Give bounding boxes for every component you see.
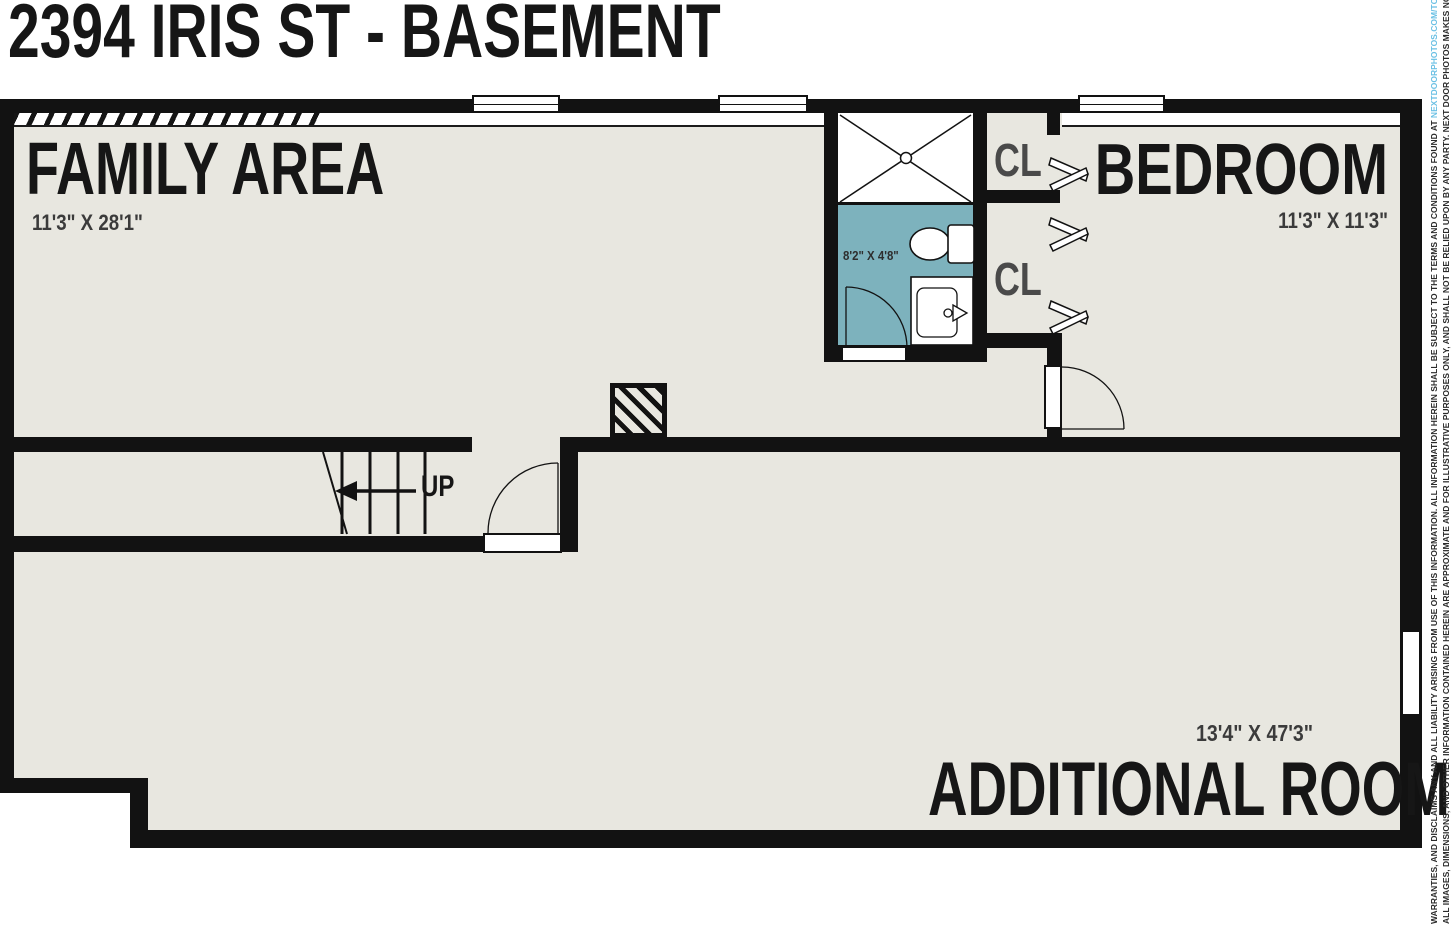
window-pane — [474, 104, 558, 105]
bedroom-label: BEDROOM — [1085, 134, 1388, 206]
wall-closet-stub-top — [1047, 113, 1060, 135]
window-additional-right — [1401, 630, 1421, 716]
closet-bottom-label: CL — [994, 256, 1036, 302]
corridor-door-threshold — [483, 533, 562, 553]
stairs-up-label: UP — [421, 472, 454, 502]
wall-bath-right — [973, 113, 987, 362]
chimney — [610, 383, 667, 438]
wall-right — [1400, 99, 1422, 848]
wall-corridor-end — [560, 437, 578, 552]
window-family-2 — [718, 95, 808, 113]
family-area-dims: 11'3" X 28'1" — [32, 212, 143, 234]
wall-bottom-main — [130, 830, 1422, 848]
wall-middle-long — [560, 437, 1406, 452]
wall-corridor-top — [14, 437, 472, 452]
disclaimer-link[interactable]: NEXTDOORPHOTOS.COM/TC. — [1429, 0, 1439, 118]
wall-left — [0, 99, 14, 793]
additional-room-dims: 13'4" X 47'3" — [843, 722, 1313, 745]
disclaimer-line-2: WARRANTIES, AND DISCLAIMS ANY AND ALL LI… — [1429, 86, 1441, 924]
wall-top — [0, 99, 1422, 113]
wall-bedroom-door-stub-top — [1047, 333, 1062, 367]
disclaimer-line-2-text: WARRANTIES, AND DISCLAIMS ANY AND ALL LI… — [1429, 118, 1439, 924]
wall-bath-left — [824, 99, 838, 362]
closet-top-label: CL — [994, 137, 1036, 183]
disclaimer-line-1-text: ALL IMAGES, DIMENSIONS, AND OTHER INFORM… — [1441, 0, 1451, 924]
window-pane — [720, 104, 806, 105]
disclaimer-text: WARRANTIES, AND DISCLAIMS ANY AND ALL LI… — [1429, 86, 1452, 924]
wall-closet-bottom — [973, 333, 1047, 348]
exterior-mask — [0, 793, 131, 927]
bedroom-door-threshold — [1044, 365, 1062, 429]
shower — [838, 113, 973, 205]
window-pane — [1080, 104, 1163, 105]
bedroom-window-strip — [1062, 113, 1400, 127]
bathroom-door-threshold — [841, 346, 907, 362]
window-family-1 — [472, 95, 560, 113]
wall-bottom-left — [0, 778, 148, 793]
floor-plan-page: 2394 IRIS ST - BASEMENT 8'2" X 4'8" — [0, 0, 1454, 927]
page-title: 2394 IRIS ST - BASEMENT — [8, 0, 721, 68]
wall-closet-mid — [973, 190, 1060, 203]
bedroom-dims: 11'3" X 11'3" — [1058, 210, 1388, 232]
disclaimer-line-1: ALL IMAGES, DIMENSIONS, AND OTHER INFORM… — [1441, 86, 1453, 924]
family-area-label: FAMILY AREA — [26, 132, 384, 206]
additional-room-label: ADDITIONAL ROOM — [928, 752, 1360, 828]
bathroom-floor — [838, 205, 973, 345]
hatched-wall-strip — [14, 113, 322, 127]
wall-corridor-bottom — [14, 536, 484, 552]
window-bedroom — [1078, 95, 1165, 113]
family-window-strip — [322, 113, 824, 127]
bathroom-dims: 8'2" X 4'8" — [843, 249, 899, 262]
